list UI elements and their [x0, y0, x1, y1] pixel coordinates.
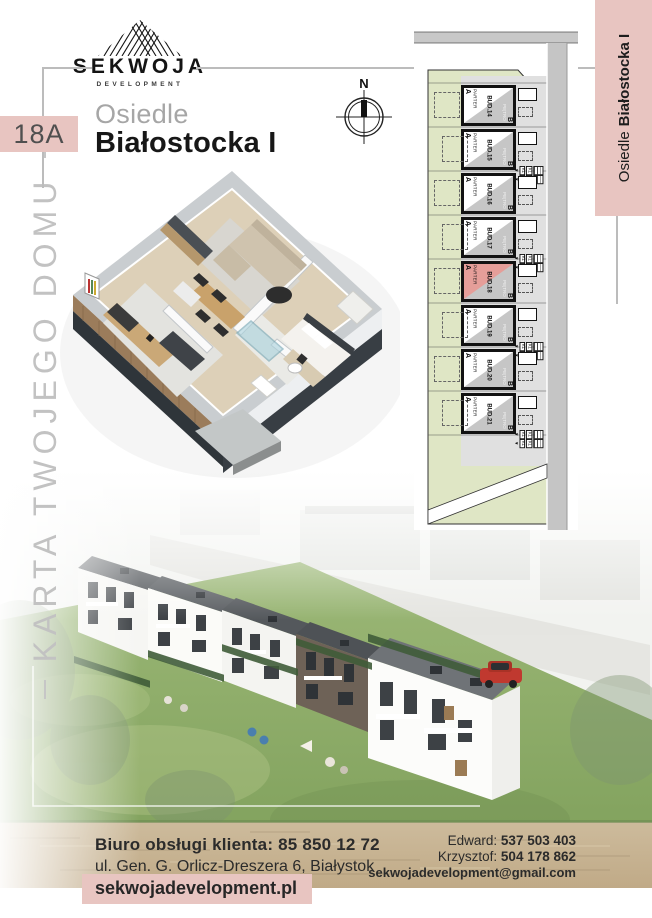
building-label-Id: BUD.15: [486, 139, 492, 160]
building-entrance: [518, 264, 537, 277]
building-terrace-outline: [434, 92, 460, 118]
site-plan-building-BUD.21[interactable]: APARTERBUD.21PIĘTROB: [461, 393, 516, 434]
building-label-B: B: [506, 293, 513, 298]
footer-contacts-block: Edward: 537 503 403 Krzysztof: 504 178 8…: [368, 833, 576, 881]
building-label-A: A: [464, 221, 471, 226]
building-entrance-annex: [518, 151, 533, 161]
building-entrance-annex: [518, 327, 533, 337]
site-plan: APARTERBUD.14PIĘTROBAPARTERBUD.15PIĘTROB…: [414, 24, 578, 530]
building-label-B: B: [506, 117, 513, 122]
contact-email[interactable]: sekwojadevelopment@gmail.com: [368, 865, 576, 881]
estate-title: Osiedle Białostocka I: [95, 101, 277, 158]
stair-label: KL: [519, 430, 525, 439]
building-entrance-annex: [518, 195, 533, 205]
contact-phone: 537 503 403: [501, 833, 576, 848]
building-terrace-outline: [434, 180, 460, 206]
building-terrace-outline: [434, 356, 460, 382]
site-plan-building-BUD.14[interactable]: APARTERBUD.14PIĘTROB: [461, 85, 516, 126]
stairwell-marker-row: ◄KLKL: [514, 430, 543, 439]
website-link[interactable]: sekwojadevelopment.pl: [82, 874, 312, 904]
utility-grid-icon: [533, 254, 543, 263]
direction-arrow-icon: ◄: [514, 441, 519, 447]
building-entrance: [518, 308, 537, 321]
building-label-A: A: [464, 309, 471, 314]
building-terrace-outline: [442, 136, 468, 162]
estate-banner-text: Osiedle Białostocka I: [612, 2, 636, 214]
stair-label: KL: [526, 166, 532, 175]
building-label-A: A: [464, 133, 471, 138]
building-label-A: A: [464, 397, 471, 402]
stairwell-marker-row: ◄KLKL: [514, 166, 543, 175]
building-label-Id: BUD.20: [486, 359, 492, 380]
stair-label: KL: [519, 166, 525, 175]
building-entrance: [518, 396, 537, 409]
building-label-B: B: [506, 161, 513, 166]
unit-3d-floorplan: [55, 163, 400, 478]
building-label-Parter: PARTER: [472, 177, 477, 197]
banner-prefix: Osiedle: [616, 131, 633, 182]
stairwell-marker-row: ◄KLKL: [514, 254, 543, 263]
contact-name: Krzysztof:: [438, 849, 497, 864]
building-label-Id: BUD.14: [486, 95, 492, 116]
site-plan-building-BUD.20[interactable]: APARTERBUD.20PIĘTROB: [461, 349, 516, 390]
building-label-Parter: PARTER: [472, 89, 477, 109]
building-terrace-outline: [442, 224, 468, 250]
banner-name: Białostocka I: [616, 34, 633, 127]
stair-label: KL: [526, 342, 532, 351]
building-entrance: [518, 220, 537, 233]
caption-dash: [44, 680, 46, 699]
building-entrance: [518, 88, 537, 101]
building-label-A: A: [464, 353, 471, 358]
stair-label: KL: [519, 439, 525, 448]
utility-grid-icon: [533, 342, 543, 351]
building-label-Parter: PARTER: [472, 265, 477, 285]
contact-line: Edward: 537 503 403: [368, 833, 576, 849]
building-label-Parter: PARTER: [472, 353, 477, 373]
building-label-Parter: PARTER: [472, 133, 477, 153]
building-entrance-annex: [518, 415, 533, 425]
north-compass-icon: N: [332, 74, 396, 146]
building-entrance: [518, 176, 537, 189]
building-label-B: B: [506, 425, 513, 430]
sekwoja-tree-logo-icon: [98, 20, 182, 58]
building-entrance: [518, 352, 537, 365]
building-label-B: B: [506, 249, 513, 254]
building-label-A: A: [464, 265, 471, 270]
compass-north-label: N: [359, 76, 368, 91]
stair-label: KL: [519, 254, 525, 263]
site-plan-building-BUD.18[interactable]: APARTERBUD.18PIĘTROB: [461, 261, 516, 302]
estate-name: Białostocka I: [95, 129, 277, 159]
utility-grid-icon: [533, 439, 543, 448]
building-label-A: A: [464, 89, 471, 94]
building-label-B: B: [506, 337, 513, 342]
building-label-Id: BUD.19: [486, 315, 492, 336]
utility-grid-icon: [533, 166, 543, 175]
building-entrance-annex: [518, 371, 533, 381]
utility-grid-icon: [533, 430, 543, 439]
building-terrace-outline: [442, 312, 468, 338]
site-plan-building-BUD.15[interactable]: APARTERBUD.15PIĘTROB: [461, 129, 516, 170]
stairwell-marker-row: ◄KLKL: [514, 342, 543, 351]
direction-arrow-icon: ◄: [514, 432, 519, 438]
office-phone-line: Biuro obsługi klienta: 85 850 12 72: [95, 835, 380, 855]
contact-name: Edward:: [448, 833, 498, 848]
brand-tagline: DEVELOPMENT: [58, 81, 222, 88]
footer-office-block: Biuro obsługi klienta: 85 850 12 72 ul. …: [95, 835, 380, 876]
site-plan-building-BUD.19[interactable]: APARTERBUD.19PIĘTROB: [461, 305, 516, 346]
building-label-Id: BUD.17: [486, 227, 492, 248]
unit-badge: 18A: [0, 116, 78, 152]
home-card-page: SEKWOJA DEVELOPMENT 18A Osiedle Białosto…: [0, 0, 652, 918]
building-label-Parter: PARTER: [472, 221, 477, 241]
building-label-Parter: PARTER: [472, 309, 477, 329]
building-label-Parter: PARTER: [472, 397, 477, 417]
building-label-Id: BUD.21: [486, 403, 492, 424]
estate-aerial-render: [0, 470, 652, 888]
building-entrance-annex: [518, 239, 533, 249]
stair-label: KL: [526, 254, 532, 263]
building-entrance-annex: [518, 107, 533, 117]
building-terrace-outline: [442, 400, 468, 426]
contact-phone: 504 178 862: [501, 849, 576, 864]
site-plan-building-BUD.17[interactable]: APARTERBUD.17PIĘTROB: [461, 217, 516, 258]
stair-label: KL: [526, 430, 532, 439]
estate-prefix: Osiedle: [95, 101, 277, 129]
header-rule-left: [42, 67, 92, 69]
building-label-Id: BUD.18: [486, 271, 492, 292]
site-plan-building-BUD.16[interactable]: APARTERBUD.16PIĘTROB: [461, 173, 516, 214]
stair-label: KL: [519, 342, 525, 351]
building-entrance: [518, 132, 537, 145]
building-label-Id: BUD.16: [486, 183, 492, 204]
building-terrace-outline: [434, 268, 460, 294]
building-label-B: B: [506, 205, 513, 210]
banner-connector-line: [616, 216, 618, 304]
stairwell-marker-row: ◄KLKL: [514, 439, 543, 448]
building-label-A: A: [464, 177, 471, 182]
building-label-B: B: [506, 381, 513, 386]
contact-line: Krzysztof: 504 178 862: [368, 849, 576, 865]
stair-label: KL: [526, 439, 532, 448]
building-entrance-annex: [518, 283, 533, 293]
